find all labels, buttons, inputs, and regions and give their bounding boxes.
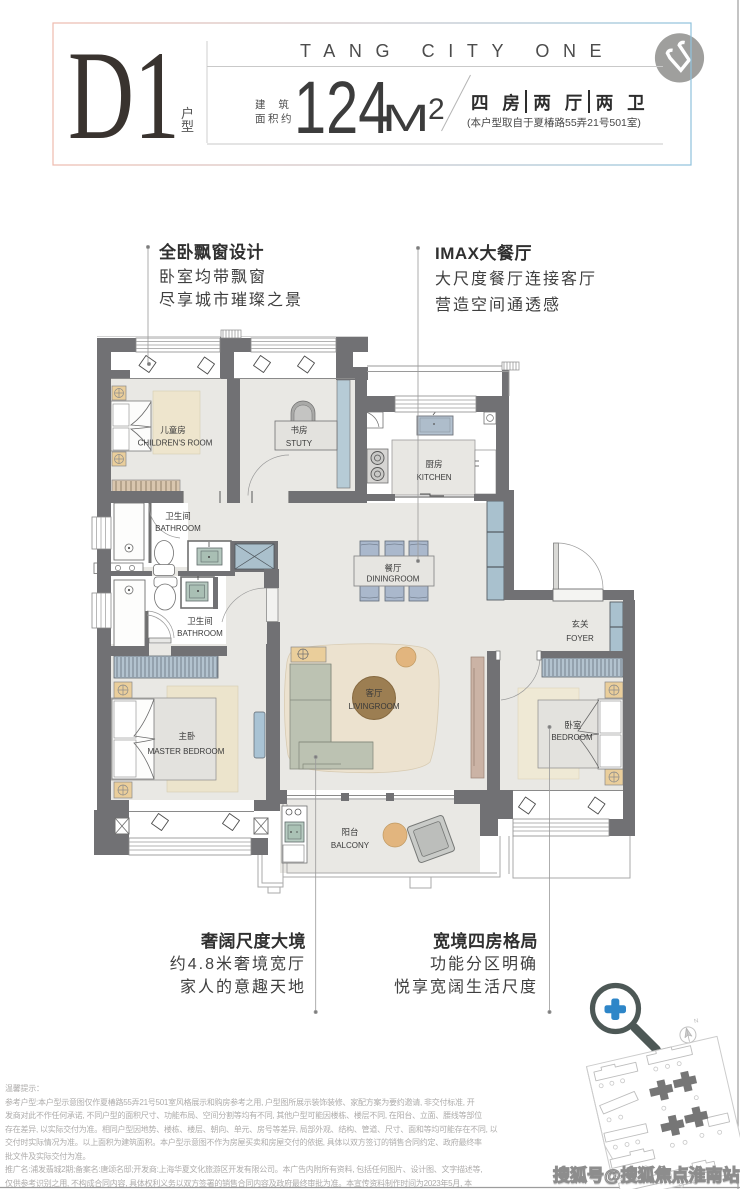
- svg-text:卫生间: 卫生间: [165, 511, 191, 521]
- svg-text:BATHROOM: BATHROOM: [177, 629, 223, 638]
- svg-text:阳台: 阳台: [341, 827, 358, 837]
- svg-text:儿童房: 儿童房: [160, 425, 186, 435]
- svg-text:STUTY: STUTY: [286, 439, 313, 448]
- svg-text:DININGROOM: DININGROOM: [367, 575, 420, 584]
- svg-text:CHILDREN'S ROOM: CHILDREN'S ROOM: [138, 439, 213, 448]
- svg-text:MASTER BEDROOM: MASTER BEDROOM: [148, 747, 225, 756]
- svg-text:餐厅: 餐厅: [384, 563, 402, 573]
- svg-text:BATHROOM: BATHROOM: [155, 524, 201, 533]
- svg-text:客厅: 客厅: [365, 688, 383, 698]
- svg-text:玄关: 玄关: [571, 619, 589, 629]
- svg-text:KITCHEN: KITCHEN: [416, 473, 451, 482]
- svg-text:LIVINGROOM: LIVINGROOM: [348, 702, 399, 711]
- svg-text:书房: 书房: [290, 425, 307, 435]
- svg-text:FOYER: FOYER: [566, 634, 594, 643]
- svg-text:卫生间: 卫生间: [187, 616, 213, 626]
- svg-text:N: N: [694, 1018, 700, 1025]
- svg-text:厨房: 厨房: [425, 459, 442, 469]
- svg-text:BALCONY: BALCONY: [331, 841, 370, 850]
- svg-text:BEDROOM: BEDROOM: [551, 733, 593, 742]
- svg-text:主卧: 主卧: [178, 731, 196, 741]
- svg-text:卧室: 卧室: [564, 720, 582, 730]
